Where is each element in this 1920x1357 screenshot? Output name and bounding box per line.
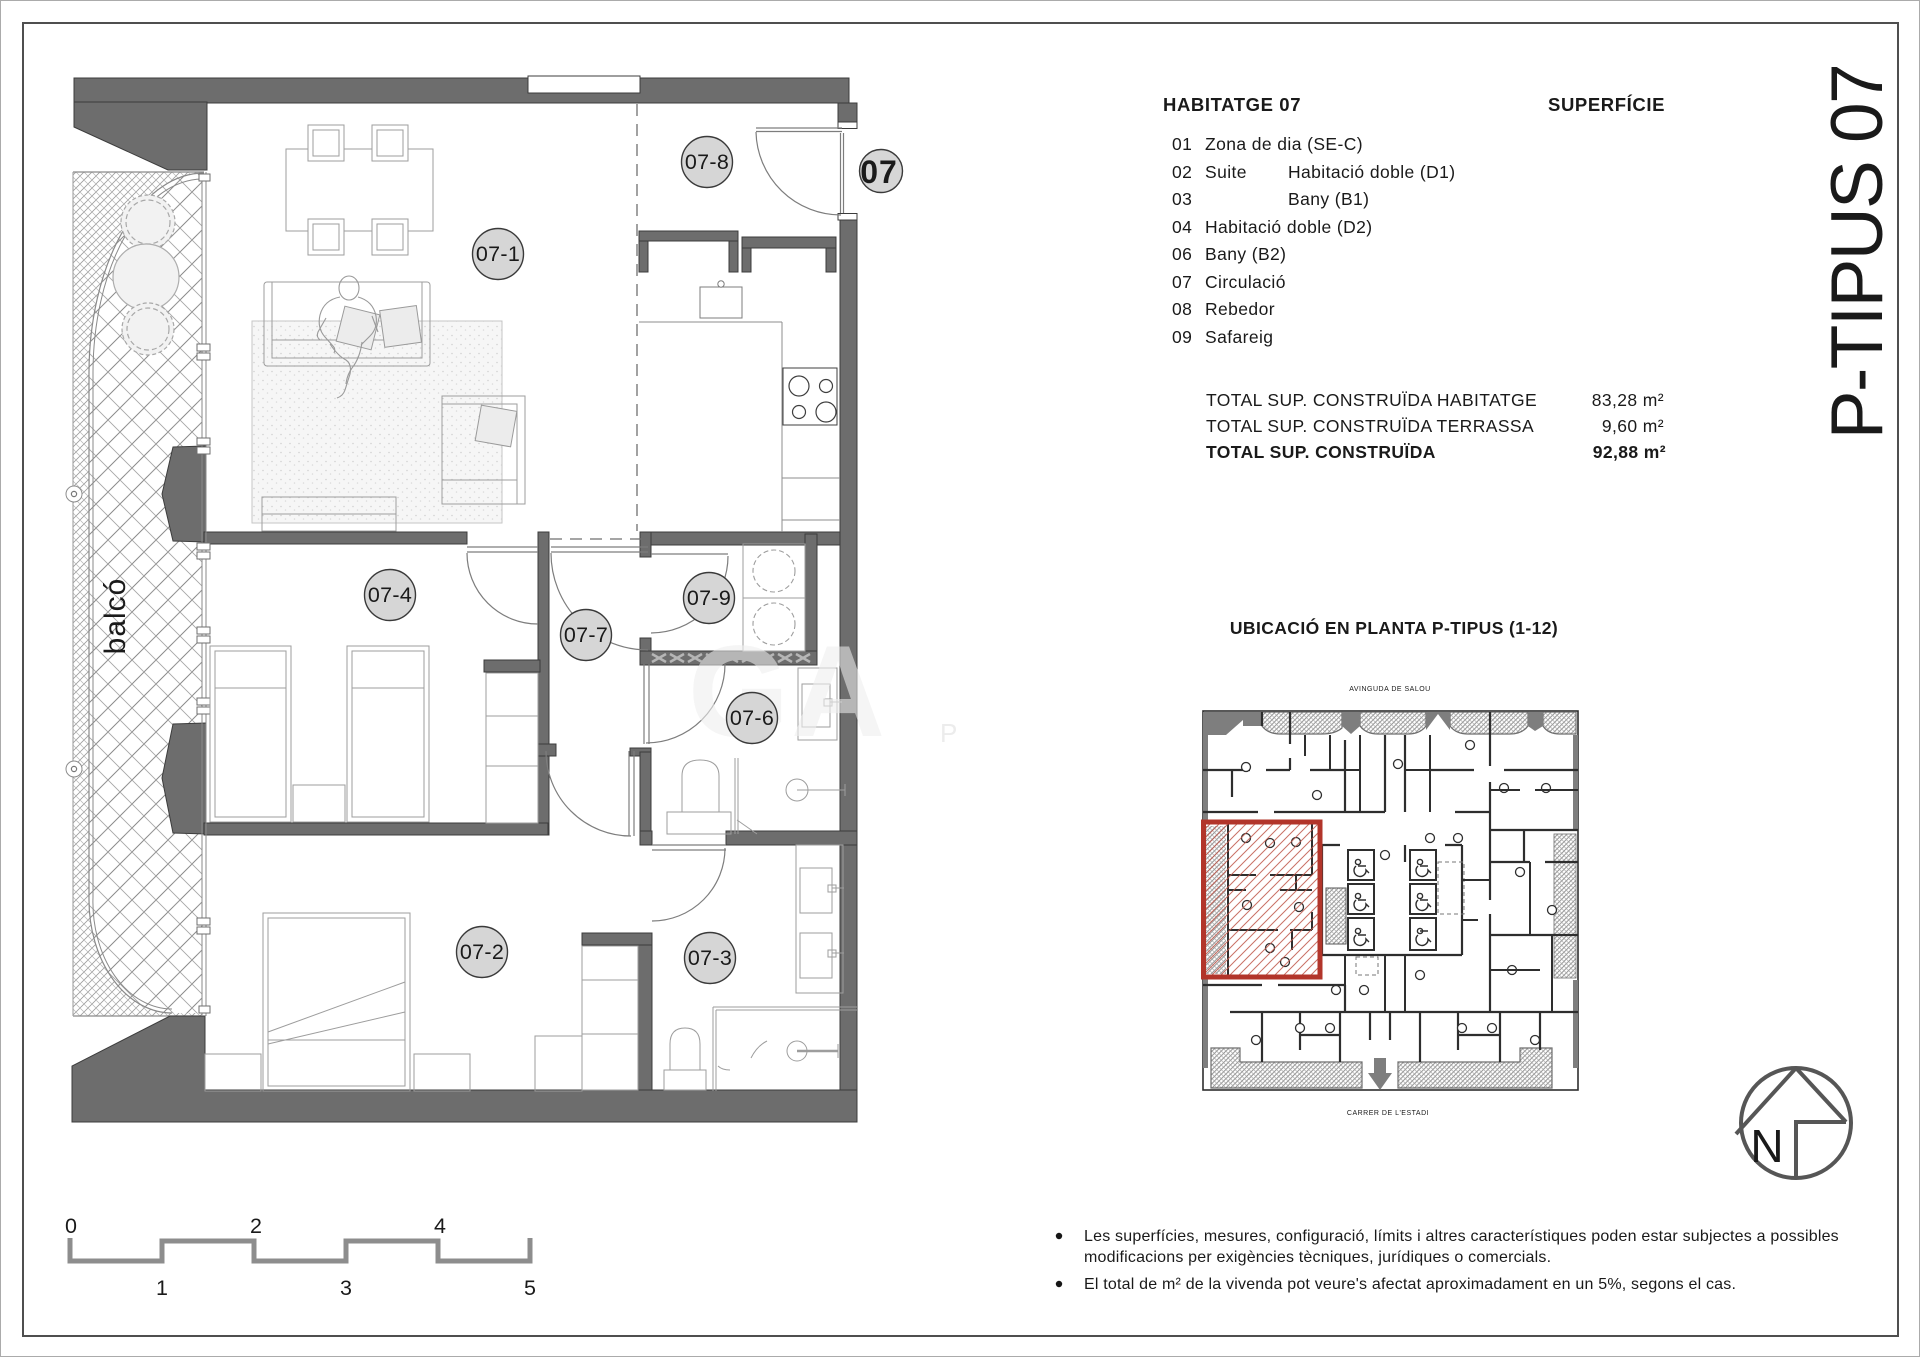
svg-text:N: N bbox=[1750, 1120, 1783, 1172]
svg-text:TOTAL SUP. CONSTRUÏDA: TOTAL SUP. CONSTRUÏDA bbox=[1206, 442, 1436, 462]
svg-text:06: 06 bbox=[1172, 244, 1192, 264]
svg-text:CARRER DE L'ESTADI: CARRER DE L'ESTADI bbox=[1347, 1110, 1429, 1117]
svg-text:P: P bbox=[940, 718, 957, 748]
svg-text:9,60 m²: 9,60 m² bbox=[1602, 416, 1664, 436]
svg-text:balcó: balcó bbox=[99, 578, 132, 655]
svg-text:4: 4 bbox=[434, 1214, 446, 1238]
svg-text:09: 09 bbox=[1172, 327, 1192, 347]
svg-text:5: 5 bbox=[524, 1276, 536, 1300]
svg-text:modificacions per exigències t: modificacions per exigències tècniques, … bbox=[1084, 1249, 1551, 1266]
svg-text:07-1: 07-1 bbox=[476, 242, 520, 266]
svg-text:07-7: 07-7 bbox=[564, 623, 608, 647]
svg-text:Suite: Suite bbox=[1205, 162, 1247, 182]
svg-text:HABITATGE 07: HABITATGE 07 bbox=[1163, 94, 1301, 115]
svg-text:02: 02 bbox=[1172, 162, 1192, 182]
svg-text:AVINGUDA DE SALOU: AVINGUDA DE SALOU bbox=[1349, 686, 1431, 693]
svg-text:07-6: 07-6 bbox=[730, 706, 774, 730]
svg-text:07: 07 bbox=[1172, 272, 1192, 292]
svg-text:04: 04 bbox=[1172, 217, 1192, 237]
svg-text:Bany (B2): Bany (B2) bbox=[1205, 244, 1286, 264]
svg-text:2: 2 bbox=[250, 1214, 262, 1238]
svg-text:03: 03 bbox=[1172, 189, 1192, 209]
svg-text:TOTAL SUP. CONSTRUÏDA HABITATG: TOTAL SUP. CONSTRUÏDA HABITATGE bbox=[1206, 390, 1537, 410]
svg-text:3: 3 bbox=[340, 1276, 352, 1300]
svg-text:Bany (B1): Bany (B1) bbox=[1288, 189, 1369, 209]
svg-text:Les superfícies, mesures, conf: Les superfícies, mesures, configuració, … bbox=[1084, 1228, 1839, 1245]
svg-text:07-9: 07-9 bbox=[687, 586, 731, 610]
svg-text:08: 08 bbox=[1172, 299, 1192, 319]
svg-text:Habitació doble (D1): Habitació doble (D1) bbox=[1288, 162, 1456, 182]
svg-text:07-2: 07-2 bbox=[460, 940, 504, 964]
svg-text:1: 1 bbox=[156, 1276, 168, 1300]
svg-text:83,28 m²: 83,28 m² bbox=[1592, 390, 1664, 410]
svg-text:07-8: 07-8 bbox=[685, 150, 729, 174]
svg-text:Rebedor: Rebedor bbox=[1205, 299, 1275, 319]
svg-text:P-TIPUS 07: P-TIPUS 07 bbox=[1817, 65, 1898, 439]
svg-text:Zona de dia (SE-C): Zona de dia (SE-C) bbox=[1205, 134, 1363, 154]
svg-text:Habitació doble (D2): Habitació doble (D2) bbox=[1205, 217, 1373, 237]
svg-text:07-4: 07-4 bbox=[368, 583, 412, 607]
svg-text:GA: GA bbox=[688, 618, 887, 764]
svg-text:Circulació: Circulació bbox=[1205, 272, 1286, 292]
svg-text:07-3: 07-3 bbox=[688, 946, 732, 970]
svg-text:El total de m² de la vivenda p: El total de m² de la vivenda pot veure's… bbox=[1084, 1276, 1736, 1293]
svg-text:TOTAL SUP. CONSTRUÏDA TERRASSA: TOTAL SUP. CONSTRUÏDA TERRASSA bbox=[1206, 416, 1534, 436]
svg-text:92,88 m²: 92,88 m² bbox=[1593, 442, 1666, 462]
svg-text:01: 01 bbox=[1172, 134, 1192, 154]
svg-text:SUPERFÍCIE: SUPERFÍCIE bbox=[1548, 94, 1665, 115]
svg-text:Safareig: Safareig bbox=[1205, 327, 1273, 347]
svg-text:0: 0 bbox=[65, 1214, 77, 1238]
svg-text:UBICACIÓ EN PLANTA P-TIPUS (1-: UBICACIÓ EN PLANTA P-TIPUS (1-12) bbox=[1230, 617, 1558, 638]
svg-text:07: 07 bbox=[860, 154, 898, 190]
